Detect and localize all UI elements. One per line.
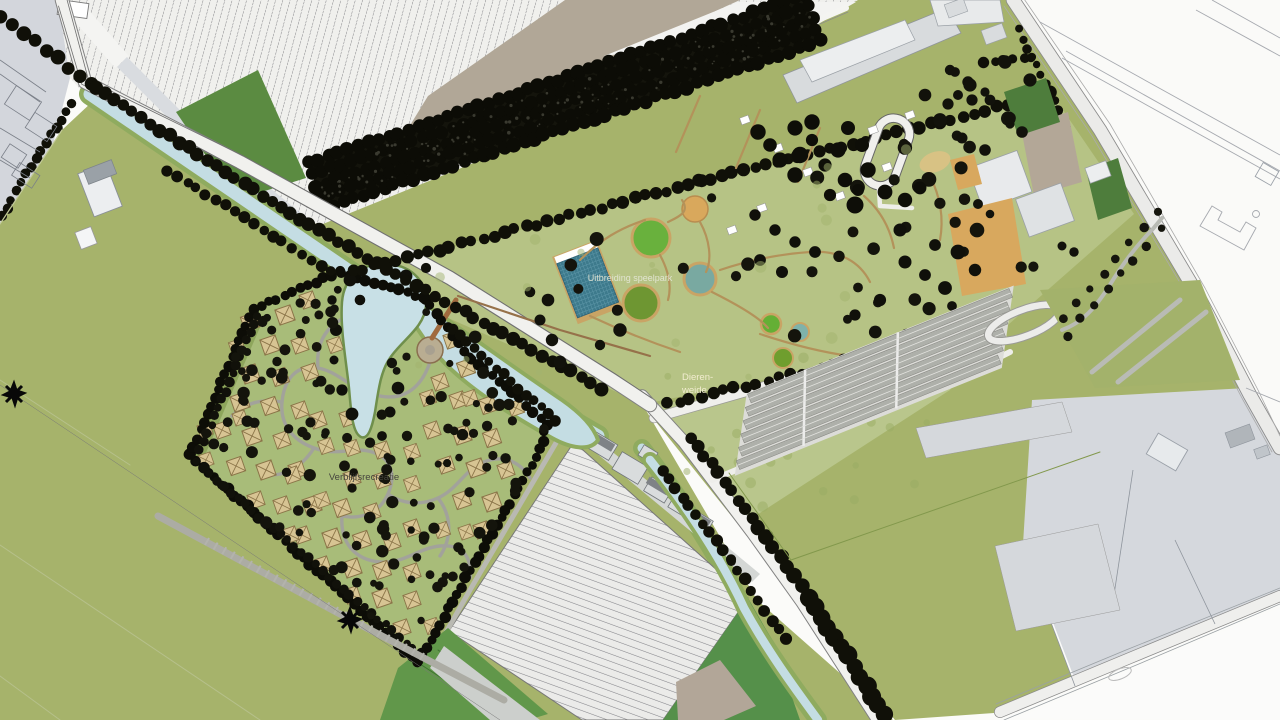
svg-text:Dieren-: Dieren- — [682, 372, 713, 383]
svg-text:Verblijfsrecreatie: Verblijfsrecreatie — [329, 472, 399, 483]
svg-text:Uitbreiding speelpark: Uitbreiding speelpark — [588, 273, 673, 283]
svg-text:weide: weide — [681, 385, 707, 396]
